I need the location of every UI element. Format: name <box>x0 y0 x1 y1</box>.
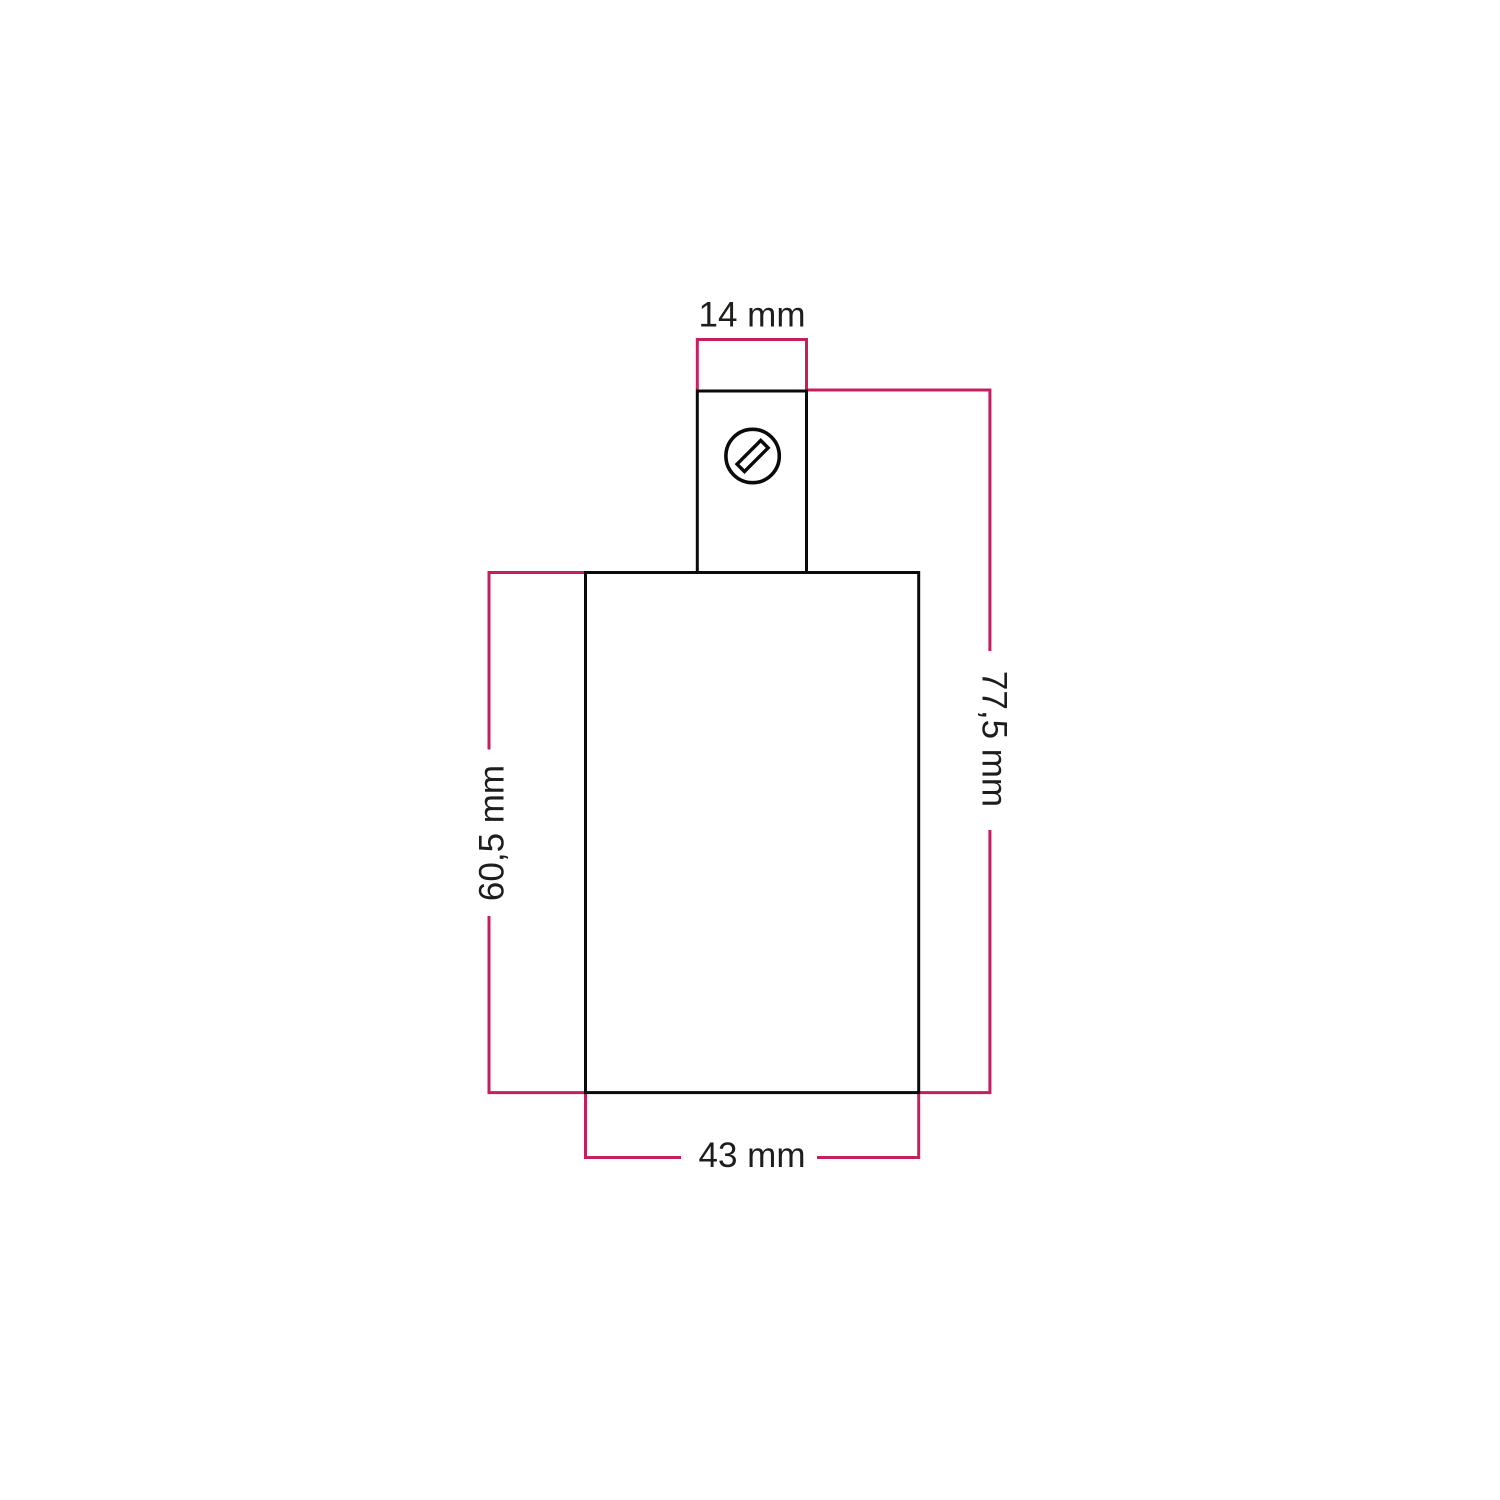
svg-text:14 mm: 14 mm <box>699 296 806 335</box>
svg-text:77,5 mm: 77,5 mm <box>975 671 1014 807</box>
svg-text:60,5 mm: 60,5 mm <box>473 765 512 901</box>
svg-text:43 mm: 43 mm <box>699 1136 806 1175</box>
